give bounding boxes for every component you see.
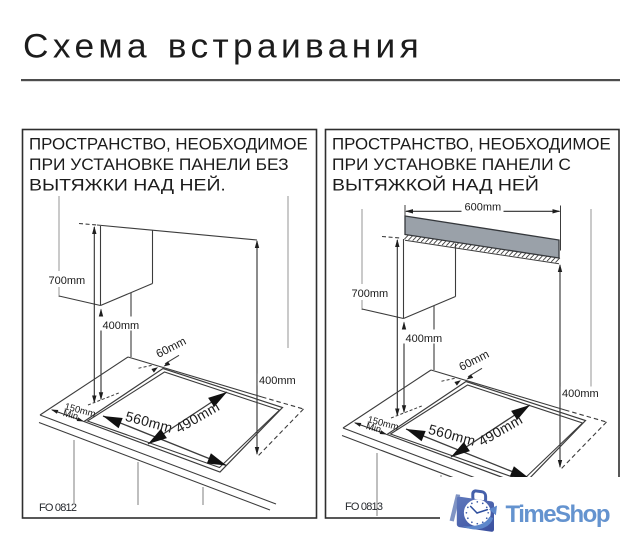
svg-text:TimeShop: TimeShop <box>506 501 611 528</box>
svg-text:Схема встраивания: Схема встраивания <box>23 28 423 65</box>
svg-text:ПРИ УСТАНОВКЕ ПАНЕЛИ БЕЗ: ПРИ УСТАНОВКЕ ПАНЕЛИ БЕЗ <box>29 154 289 174</box>
svg-text:600mm: 600mm <box>465 202 502 214</box>
svg-text:400mm: 400mm <box>406 333 443 345</box>
svg-text:ВЫТЯЖКИ НАД НЕЙ.: ВЫТЯЖКИ НАД НЕЙ. <box>29 175 226 195</box>
svg-text:400mm: 400mm <box>259 375 296 387</box>
svg-text:ВЫТЯЖКОЙ НАД НЕЙ: ВЫТЯЖКОЙ НАД НЕЙ <box>332 175 539 195</box>
svg-text:ПРИ УСТАНОВКЕ ПАНЕЛИ С: ПРИ УСТАНОВКЕ ПАНЕЛИ С <box>332 154 571 174</box>
svg-text:ПРОСТРАНСТВО, НЕОБХОДИМОЕ: ПРОСТРАНСТВО, НЕОБХОДИМОЕ <box>332 134 611 153</box>
svg-text:400mm: 400mm <box>103 320 140 332</box>
svg-text:700mm: 700mm <box>49 275 86 287</box>
svg-text:FO 0812: FO 0812 <box>39 502 77 514</box>
svg-text:400mm: 400mm <box>562 388 599 400</box>
svg-text:700mm: 700mm <box>352 288 389 300</box>
svg-text:FO 0813: FO 0813 <box>345 501 383 513</box>
svg-text:ПРОСТРАНСТВО, НЕОБХОДИМОЕ: ПРОСТРАНСТВО, НЕОБХОДИМОЕ <box>29 134 308 153</box>
